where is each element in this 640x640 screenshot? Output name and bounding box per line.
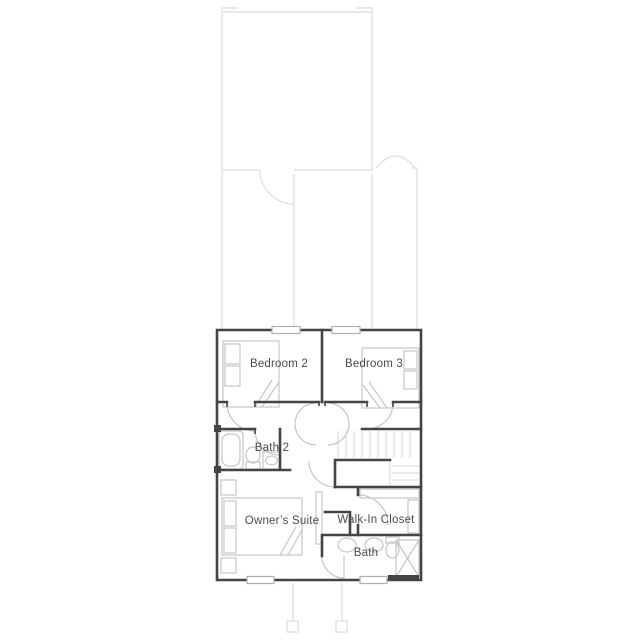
lower-floor-ghost-outline [222,8,417,330]
floor-plan-canvas: Bedroom 2 Bedroom 3 Bath 2 Owner’s Suite… [0,0,640,640]
hall-door-arc-left [295,403,316,445]
bedroom3-bed [362,348,419,408]
pillow [224,501,236,526]
pillow [225,344,240,364]
window-bath [360,577,387,584]
bedroom2-bed [223,341,279,407]
pillow [224,528,236,553]
nightstand [221,558,236,573]
walkin-closet-shelving [360,489,419,533]
room-label-bedroom-2: Bedroom 2 [250,358,308,370]
room-label-owners-suite: Owner’s Suite [245,515,319,527]
pillow [404,351,417,369]
window-bedroom2 [272,327,300,334]
pillow [225,366,240,386]
room-label-bedroom-3: Bedroom 3 [345,358,403,370]
window-bedroom3 [332,327,360,334]
floor-plan-drawing [0,0,640,640]
bath2-tub [219,431,243,469]
nightstand [221,480,236,495]
window-owners-suite [247,577,274,584]
bath-door-arc [322,556,344,578]
bath-shower [396,540,419,577]
porch-ghost-outline [287,583,347,632]
porch-post-right [336,621,347,632]
porch-post-left [287,621,298,632]
room-label-bath-2: Bath 2 [255,442,289,454]
pillow [404,371,417,389]
room-label-walk-in-closet: Walk-In Closet [337,514,414,526]
room-label-bath: Bath [354,547,378,559]
bedroom3-door-arc [367,403,393,429]
landing-door-arc [309,461,335,487]
